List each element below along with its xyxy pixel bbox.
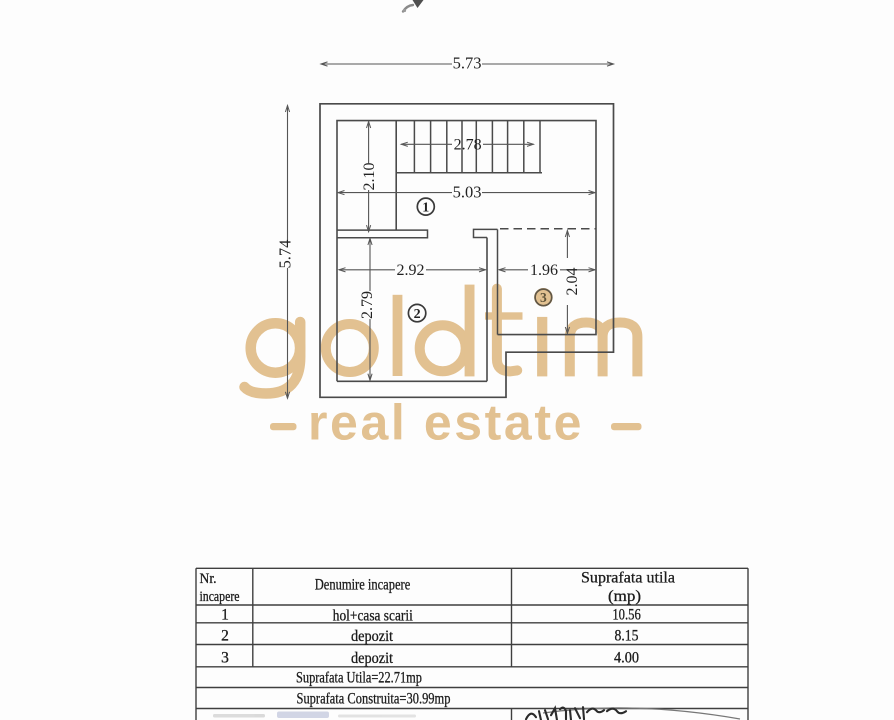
svg-text:real estate: real estate bbox=[308, 394, 584, 450]
svg-text:8.15: 8.15 bbox=[615, 628, 639, 645]
svg-text:2.04: 2.04 bbox=[564, 268, 581, 296]
svg-text:Suprafata Construita=30.99mp: Suprafata Construita=30.99mp bbox=[297, 691, 451, 708]
svg-text:4.00: 4.00 bbox=[614, 650, 639, 667]
svg-text:10.56: 10.56 bbox=[612, 607, 641, 624]
svg-text:3: 3 bbox=[540, 290, 547, 305]
svg-text:depozit: depozit bbox=[351, 628, 394, 645]
svg-text:2: 2 bbox=[414, 307, 421, 322]
svg-text:3: 3 bbox=[221, 650, 229, 667]
svg-text:Denumire incapere: Denumire incapere bbox=[315, 577, 411, 594]
svg-text:2.78: 2.78 bbox=[454, 136, 482, 153]
svg-text:1: 1 bbox=[422, 201, 429, 216]
svg-text:2: 2 bbox=[221, 628, 229, 645]
svg-text:5.03: 5.03 bbox=[453, 183, 482, 202]
svg-text:2.92: 2.92 bbox=[397, 262, 425, 279]
svg-text:Nr.: Nr. bbox=[200, 571, 217, 587]
svg-text:hol+casa scarii: hol+casa scarii bbox=[333, 608, 414, 625]
svg-text:5.74: 5.74 bbox=[276, 240, 295, 269]
svg-text:Suprafata Utila=22.71mp: Suprafata Utila=22.71mp bbox=[296, 670, 422, 687]
svg-text:2.10: 2.10 bbox=[361, 163, 378, 191]
svg-text:incapere: incapere bbox=[200, 589, 240, 605]
svg-text:1: 1 bbox=[221, 607, 229, 624]
svg-text:5.73: 5.73 bbox=[453, 54, 482, 73]
svg-text:2.79: 2.79 bbox=[359, 291, 376, 319]
svg-text:(mp): (mp) bbox=[608, 588, 641, 605]
svg-text:Suprafata utila: Suprafata utila bbox=[581, 570, 675, 587]
svg-text:depozit: depozit bbox=[351, 650, 394, 667]
svg-text:1.96: 1.96 bbox=[530, 262, 558, 279]
